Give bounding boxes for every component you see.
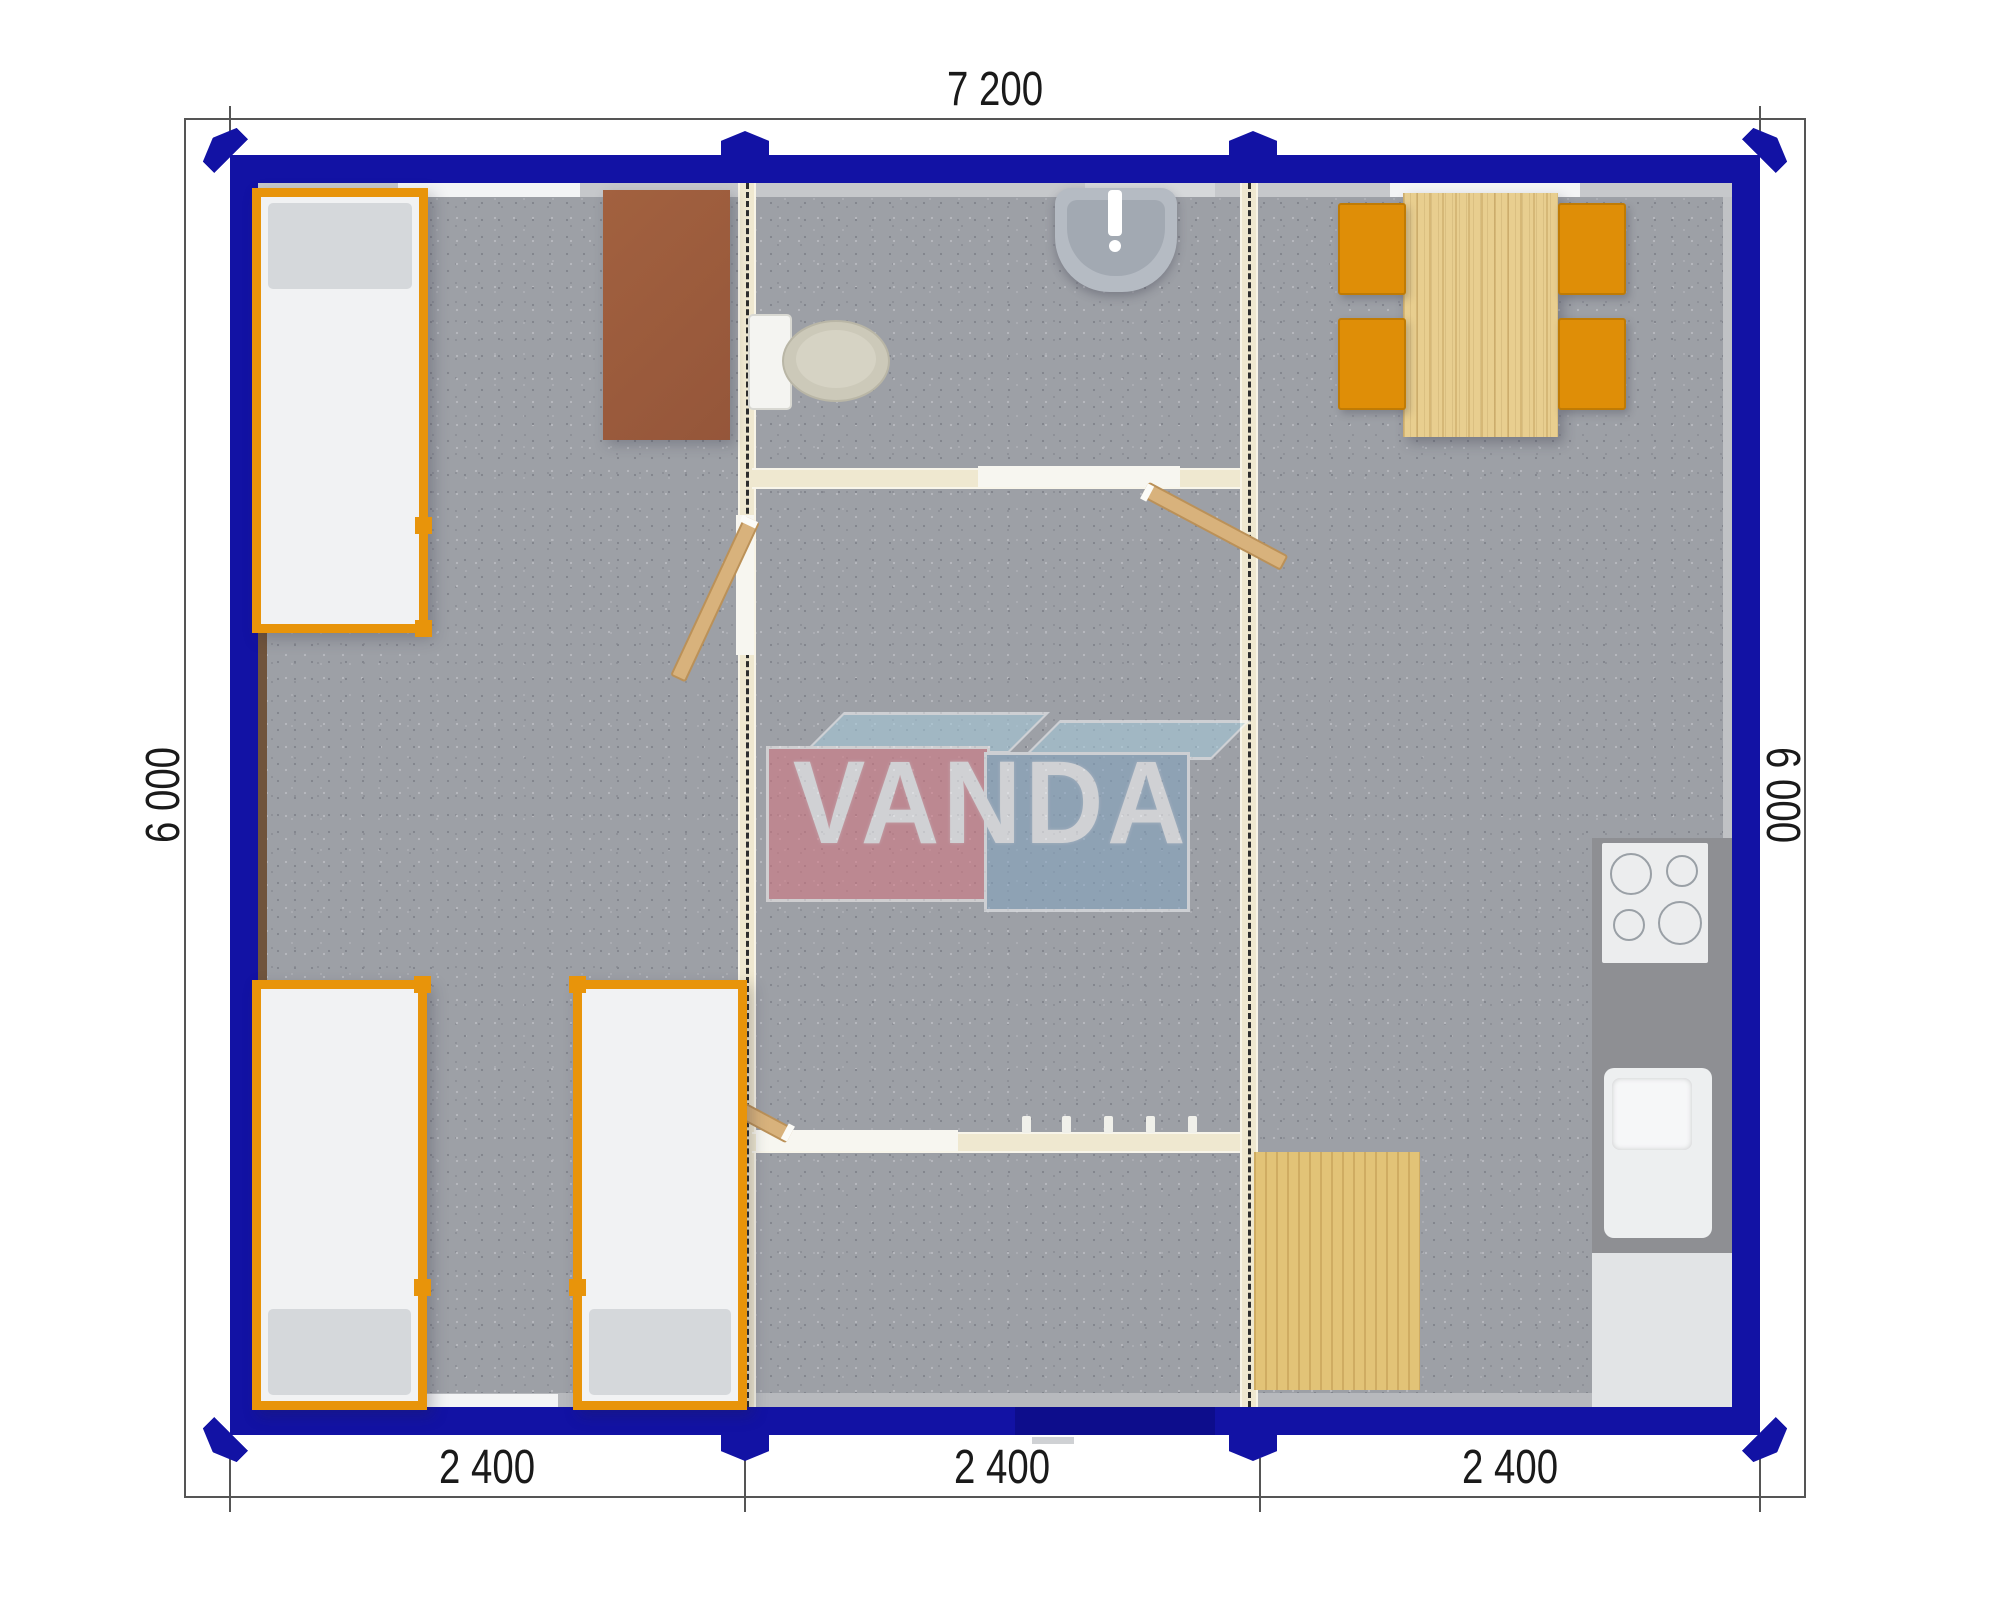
- extension-tick: [1759, 1458, 1761, 1512]
- floor-plan-canvas: 7 200 6 000 6 000 2 400 2 400 2 400: [0, 0, 2000, 1597]
- bed-post: [415, 517, 432, 534]
- window: [410, 1394, 558, 1407]
- chair: [1558, 318, 1626, 410]
- entrance-door: [1015, 1407, 1215, 1435]
- burner: [1666, 855, 1698, 887]
- dimension-line-bottom: [185, 1496, 1805, 1498]
- bed-post: [414, 1279, 431, 1296]
- dimension-label-bottom-1: 2 400: [387, 1442, 587, 1492]
- coat-hook: [1022, 1116, 1031, 1133]
- kitchen-cabinet: [1592, 1253, 1732, 1407]
- toilet-seat: [796, 330, 876, 388]
- chair: [1338, 203, 1406, 295]
- bed: [252, 980, 427, 1410]
- bed-post: [415, 620, 432, 637]
- faucet: [1108, 190, 1122, 236]
- module-joint-arrow-top: [721, 131, 769, 157]
- module-joint-arrow-top: [1229, 131, 1277, 157]
- extension-tick: [744, 1458, 746, 1512]
- extension-tick: [229, 1458, 231, 1512]
- dimension-label-bottom-3: 2 400: [1410, 1442, 1610, 1492]
- kitchen-sink: [1604, 1068, 1712, 1238]
- pillow: [268, 1309, 411, 1395]
- dimension-label-bottom-2: 2 400: [902, 1442, 1102, 1492]
- burner: [1613, 909, 1645, 941]
- coat-hook: [1104, 1116, 1113, 1133]
- chair: [1338, 318, 1406, 410]
- wardrobe: [603, 190, 730, 440]
- dimension-line-top: [185, 118, 1805, 120]
- vanda-logo-text: VANDA: [771, 718, 1211, 888]
- entrance-step: [1032, 1437, 1074, 1444]
- chair: [1558, 203, 1626, 295]
- dining-table: [1403, 193, 1558, 437]
- interior-door: [1141, 482, 1288, 571]
- bed-post: [569, 1279, 586, 1296]
- bed-post: [569, 976, 586, 993]
- kitchen-sink-bowl: [1612, 1078, 1692, 1150]
- outer-wall: VANDA: [230, 155, 1760, 1435]
- extension-tick: [1259, 1458, 1261, 1512]
- burner: [1658, 901, 1702, 945]
- coat-hook: [1146, 1116, 1155, 1133]
- coat-hook: [1188, 1116, 1197, 1133]
- wood-floor-mat: [1254, 1152, 1420, 1390]
- pillow: [268, 203, 412, 289]
- module-joint-arrow-bottom: [1229, 1435, 1277, 1461]
- bed: [252, 188, 428, 633]
- dimension-label-top: 7 200: [895, 64, 1095, 114]
- pillow: [589, 1309, 731, 1395]
- extension-tick: [1759, 106, 1761, 132]
- bed-post: [414, 976, 431, 993]
- stove: [1602, 843, 1708, 963]
- bed: [573, 980, 747, 1410]
- module-joint-dash: [1248, 183, 1251, 1407]
- module-joint-arrow-bottom: [721, 1435, 769, 1461]
- floor: VANDA: [258, 183, 1732, 1407]
- burner: [1610, 853, 1652, 895]
- extension-tick: [229, 106, 231, 132]
- faucet-knob: [1109, 240, 1121, 252]
- vanda-watermark: VANDA: [752, 690, 1230, 910]
- coat-hook: [1062, 1116, 1071, 1133]
- dimension-label-left: 6 000: [83, 739, 243, 851]
